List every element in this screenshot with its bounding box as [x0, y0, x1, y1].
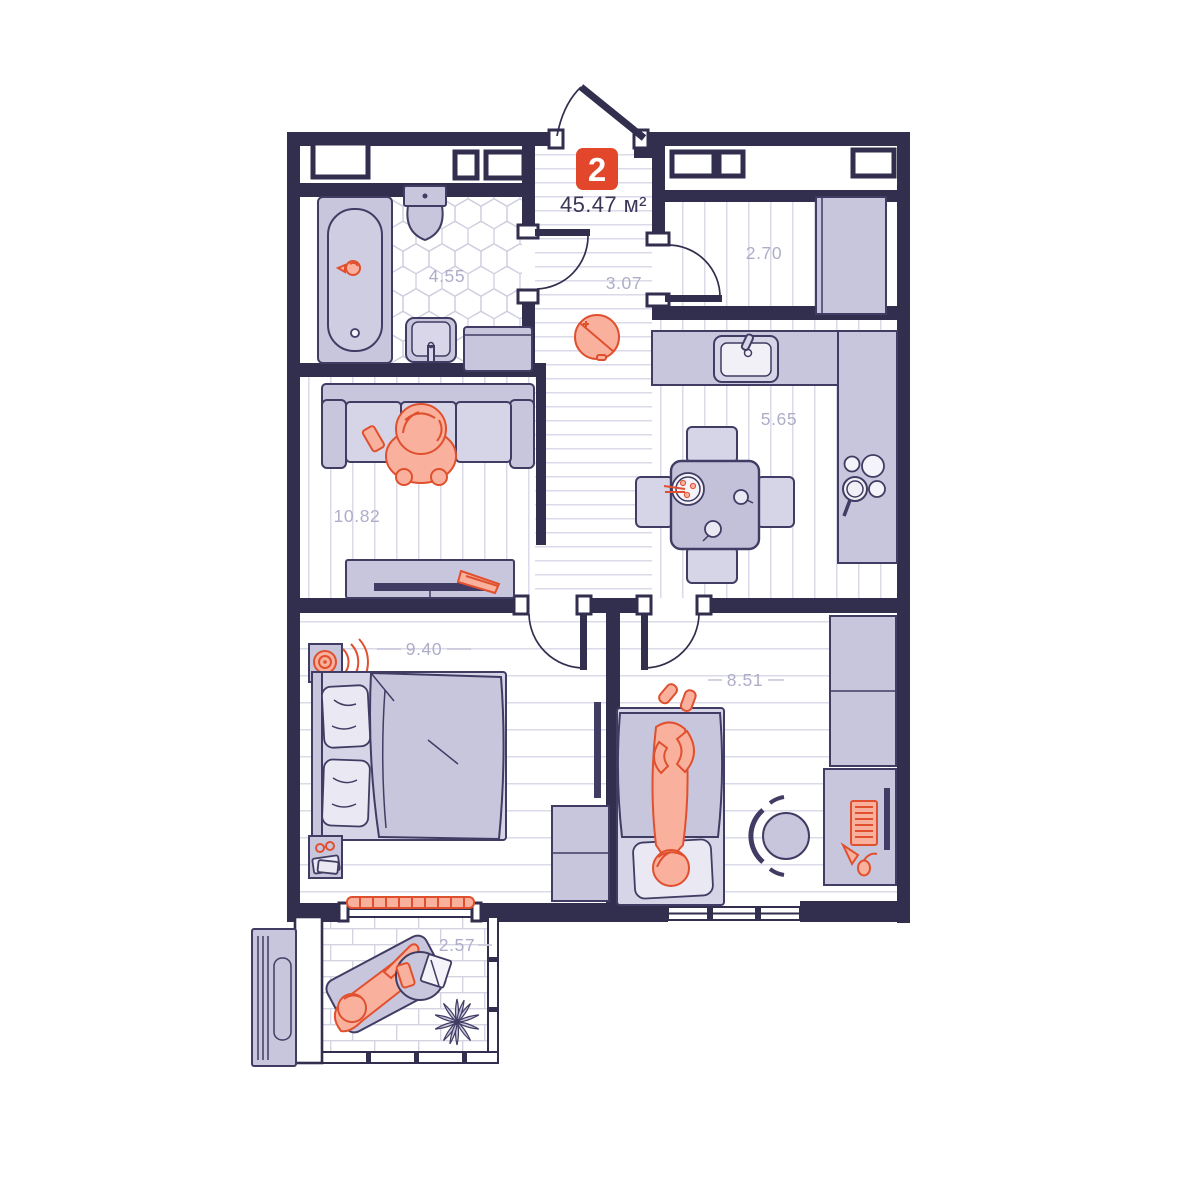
bathtub	[318, 197, 392, 363]
desk	[824, 769, 896, 885]
person-on-bed	[653, 722, 695, 886]
storage-wardrobe	[816, 197, 886, 314]
vent-shaft	[672, 152, 714, 176]
pillow	[321, 685, 370, 748]
vent-shaft	[313, 143, 368, 177]
nightstand	[309, 836, 342, 878]
exterior-wall-column	[295, 917, 322, 1063]
books	[312, 855, 340, 874]
tv-stand	[346, 560, 514, 598]
kitchen-sink	[714, 333, 778, 382]
svg-text:8.51: 8.51	[727, 670, 763, 690]
room-count-number: 2	[588, 151, 606, 188]
kitchen-cabinet-column	[838, 331, 897, 563]
vent-shaft	[853, 150, 894, 176]
floor-plan: 4.55 3.07 2.70 5.65 10.82 9.40 8.51 2.57…	[0, 0, 1200, 1200]
floor-plan-page: 4.55 3.07 2.70 5.65 10.82 9.40 8.51 2.57…	[0, 0, 1200, 1200]
vent-shaft	[719, 152, 743, 176]
chair	[687, 547, 737, 583]
chair	[757, 477, 794, 527]
storage-area-label: 2.70	[746, 243, 782, 263]
keyboard	[851, 801, 877, 845]
svg-text:2.57: 2.57	[439, 935, 475, 955]
total-area-label: 45.47 м²	[560, 192, 647, 217]
bathroom-sink	[406, 318, 456, 362]
blanket	[370, 673, 504, 839]
bathroom-area-label: 4.55	[429, 266, 465, 286]
living-room-area-label: 10.82	[334, 506, 381, 526]
pillow	[322, 759, 370, 827]
robot-vacuum	[575, 315, 619, 360]
vent-shaft	[455, 152, 477, 178]
kitchen-area-label: 5.65	[761, 409, 797, 429]
hallway-area-label: 3.07	[606, 273, 642, 293]
wall-tv	[594, 702, 601, 798]
bedroom-window	[668, 907, 800, 920]
svg-text:9.40: 9.40	[406, 639, 442, 659]
radiator	[347, 897, 474, 908]
chair	[636, 477, 673, 527]
vent-shaft	[486, 152, 524, 178]
monitor	[884, 788, 890, 850]
washing-machine	[464, 327, 532, 371]
double-bed	[312, 672, 506, 840]
chair	[687, 427, 737, 463]
ac-unit	[252, 929, 296, 1066]
